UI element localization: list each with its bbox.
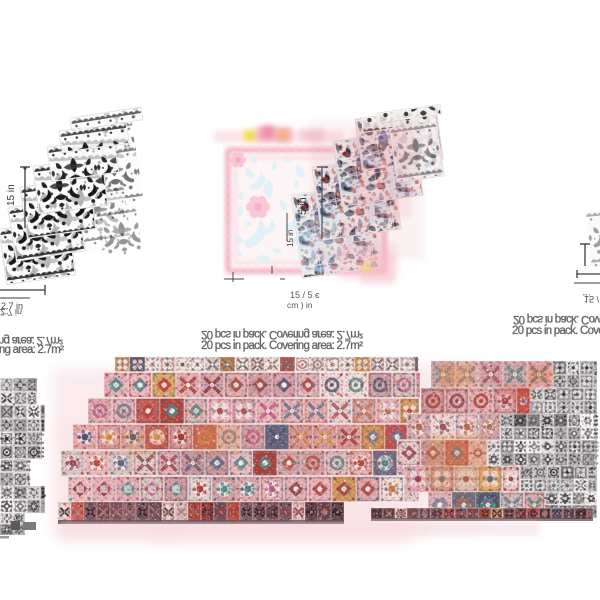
svg-text:' '': ' ''	[2, 313, 8, 320]
svg-text:''' ': ''' '	[583, 294, 590, 301]
svg-text:15 / 5 є: 15 / 5 є	[290, 290, 320, 300]
svg-text:15 in: 15 in	[6, 184, 17, 206]
svg-text:20 pcs in pack. Covering area:: 20 pcs in pack. Covering area: 2.7m²	[0, 344, 64, 356]
svg-text:20 pcs in pack. Covering area:: 20 pcs in pack. Covering area: 2.7m²	[512, 325, 600, 337]
svg-text:20 pcs in pack. Covering area:: 20 pcs in pack. Covering area: 2.7m²	[201, 328, 363, 340]
svg-text:cm ) in: cm ) in	[287, 300, 313, 310]
svg-text:5 in: 5 in	[297, 197, 309, 215]
svg-text:2.7 in: 2.7 in	[1, 301, 23, 311]
svg-text:20 pcs in pack. Covering area:: 20 pcs in pack. Covering area: 2.7m²	[201, 340, 363, 352]
svg-text:20 pcs in pack. Covering area:: 20 pcs in pack. Covering area: 2.7m²	[513, 313, 600, 325]
